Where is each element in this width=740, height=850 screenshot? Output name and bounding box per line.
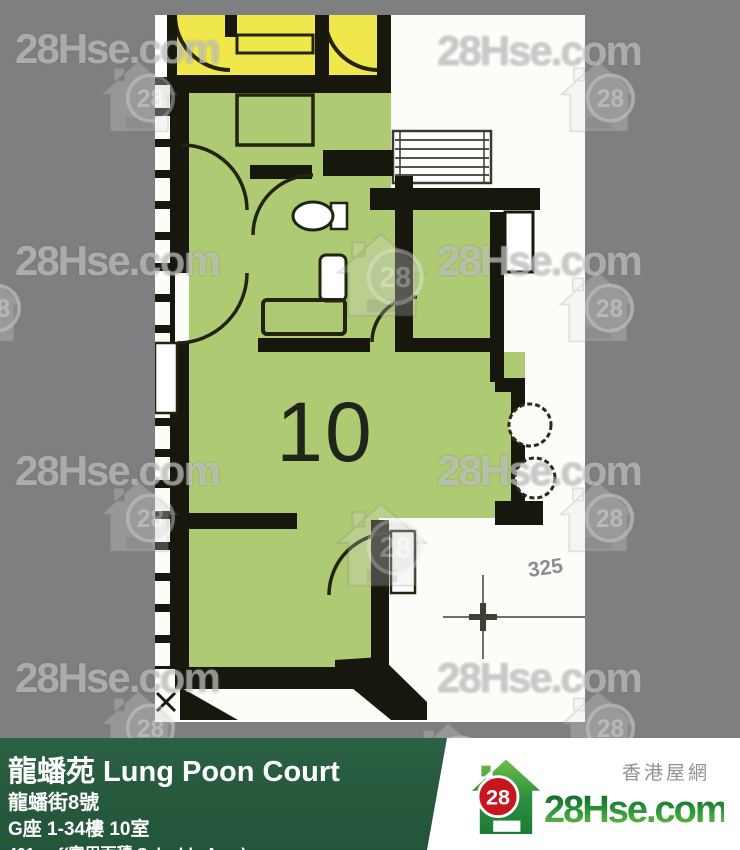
unit-number: 10: [276, 385, 373, 479]
shrub: [509, 404, 551, 446]
28hse-house-logo-icon[interactable]: 28: [466, 755, 546, 843]
property-info-banner: 龍蟠苑 Lung Poon Court 龍蟠街8號 G座 1-34樓 10室 4…: [0, 722, 740, 850]
property-info: 龍蟠苑 Lung Poon Court 龍蟠街8號 G座 1-34樓 10室 4…: [8, 755, 340, 850]
shrub: [515, 458, 555, 498]
svg-text:28: 28: [486, 785, 510, 810]
estate-address: 龍蟠街8號: [8, 789, 340, 817]
corridor-area: [175, 15, 378, 77]
unit-info: G座 1-34樓 10室: [8, 817, 340, 843]
svg-text:28: 28: [597, 86, 624, 113]
svg-text:28: 28: [596, 506, 623, 533]
area-info: 401 sqf(實用面積 Saleable Area): [8, 843, 340, 850]
entry-door-leaf: [155, 343, 177, 413]
dining-area: [189, 518, 379, 670]
sink: [320, 255, 346, 301]
watermark-house-icon: 28: [0, 266, 30, 358]
floor-plan-svg: 325 10: [155, 15, 585, 722]
estate-title: 龍蟠苑 Lung Poon Court: [8, 755, 340, 789]
info-panel: 龍蟠苑 Lung Poon Court 龍蟠街8號 G座 1-34樓 10室 4…: [0, 738, 447, 850]
louver-vent: [393, 131, 491, 183]
site-name-chinese: 香港屋網: [622, 758, 710, 785]
svg-text:28: 28: [596, 296, 623, 323]
bedroom-area: [410, 200, 490, 352]
page: 325 10 28Hse.com 28Hse.com 28Hse.com 28H…: [0, 0, 740, 850]
dimension-label: 325: [526, 554, 564, 582]
floor-plan-image: 325 10: [155, 15, 585, 722]
28hse-site-logo[interactable]: 28Hse.com: [544, 786, 724, 832]
main-door-leaf: [391, 531, 415, 593]
bay-window: [505, 212, 533, 272]
site-name: 28Hse.com: [544, 789, 724, 831]
toilet: [293, 202, 333, 230]
svg-text:28: 28: [0, 296, 10, 323]
